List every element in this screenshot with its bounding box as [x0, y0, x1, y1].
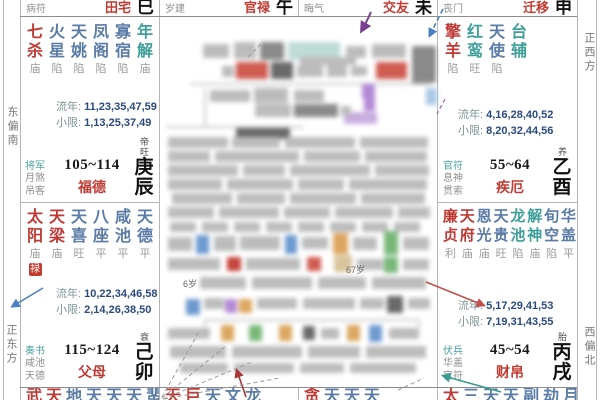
redacted-block — [290, 193, 356, 204]
redacted-block — [300, 363, 344, 373]
star-column: 天府庙 — [459, 208, 476, 261]
star-brightness: 庙 — [30, 63, 41, 76]
star-char: 红 — [467, 23, 483, 42]
star-char: 解 — [137, 42, 153, 61]
clipped-star-char: 武 — [26, 388, 42, 400]
palace-wu-strip: 岁建 官禄午 — [159, 0, 298, 16]
star-char: 龙 — [510, 208, 525, 227]
star-column: 咸池平 — [112, 208, 134, 276]
star-char: 鸾 — [467, 42, 483, 61]
redacted-block — [362, 222, 388, 232]
star-column: 华盖平 — [560, 208, 577, 261]
redacted-block — [246, 258, 300, 270]
palace-mao-fumu: 太阳庙禄天梁庙天喜旺八座平咸池平天德平流年: 10,22,34,46,58小限:… — [20, 202, 159, 387]
star-brightness: 陷 — [492, 63, 503, 76]
redacted-block — [255, 104, 291, 117]
star-column: 火星陷 — [46, 23, 68, 76]
redacted-block — [285, 235, 297, 254]
star-column: 天梁庙 — [46, 208, 68, 276]
star-column: 八座平 — [90, 208, 112, 276]
heavenly-stem: 己 — [134, 343, 153, 363]
star-brightness: 庙 — [529, 248, 540, 261]
redacted-block — [219, 207, 279, 218]
liunian-line: 流年: 10,22,34,46,58 — [56, 286, 158, 302]
redacted-block — [297, 65, 323, 77]
earthly-branch: 酉 — [552, 178, 571, 198]
star-brightness: 庙 — [462, 248, 473, 261]
star-char: 阳 — [27, 227, 43, 246]
star-char: 贵 — [494, 227, 509, 246]
xiaoxian-line: 小限: 8,20,32,44,56 — [458, 123, 553, 139]
star-char: 八 — [93, 208, 109, 227]
direction-label-west-north: 西偏北 — [583, 326, 595, 368]
redacted-block — [203, 44, 229, 58]
liunian-years: 10,22,34,46,58 — [84, 288, 157, 300]
shensha-list: 奏书咸池天德 — [25, 346, 52, 384]
palace-bottom: 官符息神贯索55~64疾厄养乙酉 — [443, 147, 574, 198]
redacted-block — [236, 128, 290, 139]
star-char: 年 — [137, 23, 153, 42]
star-column: 天喜旺 — [68, 208, 90, 276]
redacted-block — [186, 299, 200, 315]
redacted-block — [366, 346, 426, 358]
age-range: 45~54 — [470, 342, 550, 359]
redacted-block — [200, 277, 246, 289]
redacted-block — [234, 222, 260, 232]
xiaoxian-line: 小限: 7,19,31,43,55 — [458, 314, 553, 330]
shensha-item: 奏书 — [25, 346, 52, 359]
xiaoxian-years: 8,20,32,44,56 — [486, 125, 553, 137]
shensha-list: 官符息神贯索 — [443, 161, 470, 199]
star-brightness: 陷 — [96, 63, 107, 76]
xiaoxian-label: 小限: — [56, 304, 84, 316]
xiaoxian-line: 小限: 2,14,26,38,50 — [56, 302, 158, 318]
shensha-item: 天德 — [25, 371, 52, 384]
redacted-block — [403, 259, 429, 270]
star-char: 池 — [510, 227, 525, 246]
star-brightness: 陷 — [118, 63, 129, 76]
branch-label: 巳 — [137, 1, 154, 15]
star-char: 天 — [137, 208, 153, 227]
branch-label: 申 — [555, 1, 572, 15]
redacted-block — [168, 137, 228, 148]
redacted-block — [249, 325, 262, 341]
redacted-block — [362, 84, 375, 99]
palace-mid: 45~54财帛 — [470, 342, 550, 383]
star-brightness: 陷 — [546, 248, 557, 261]
branch-label: 未 — [415, 1, 432, 15]
redacted-block — [307, 257, 321, 271]
redacted-block — [418, 319, 420, 328]
redacted-block — [168, 165, 238, 176]
palace-name: 福德 — [52, 177, 132, 197]
star-char: 贞 — [443, 227, 458, 246]
star-char: 寡 — [115, 23, 131, 42]
shensha-label: 晦气 — [304, 4, 324, 15]
star-brightness: 庙 — [52, 248, 63, 261]
liunian-line: 流年: 5,17,29,41,53 — [458, 298, 553, 314]
redacted-block — [300, 57, 356, 65]
redacted-block — [227, 257, 241, 271]
star-char: 姚 — [71, 42, 87, 61]
redacted-block — [294, 90, 324, 102]
stem-branch-column: 衰己卯 — [132, 332, 156, 383]
palace-hai-strip: 太三天天副劫月 — [438, 388, 577, 400]
star-char: 羊 — [445, 42, 461, 61]
star-brightness: 旺 — [496, 248, 507, 261]
palace-name: 迁移 — [523, 1, 549, 15]
clipped-star-char: 太 — [443, 388, 459, 400]
star-brightness: 庙 — [479, 248, 490, 261]
redacted-block — [266, 222, 292, 232]
earthly-branch: 辰 — [134, 178, 153, 198]
star-char: 旬 — [544, 208, 559, 227]
center-age-fragment-mid: 67岁 — [346, 263, 365, 276]
outer-right-border — [596, 0, 597, 400]
clipped-star-char: 天 — [344, 388, 360, 400]
redacted-block — [204, 319, 206, 328]
center-age-fragment-small: 6岁 — [183, 277, 197, 290]
clipped-star-char: 天 — [106, 388, 122, 400]
shensha-item: 贯索 — [443, 186, 470, 199]
redacted-block — [321, 328, 339, 339]
heavenly-stem: 乙 — [552, 158, 571, 178]
star-char: 天 — [71, 23, 87, 42]
shensha-label: 岁建 — [165, 4, 185, 15]
liunian-years: 4,16,28,40,52 — [486, 109, 553, 121]
life-stage-label: 衰 — [139, 332, 149, 342]
shensha-item: 官符 — [443, 161, 470, 174]
heavenly-stem: 庚 — [134, 158, 153, 178]
shensha-item: 将军 — [25, 161, 52, 174]
redacted-block — [349, 179, 427, 190]
star-char: 天 — [71, 208, 87, 227]
palace-chen-fude: 七杀庙火星陷天姚陷凤阁陷寡宿陷年解庙流年: 11,23,35,47,59小限: … — [20, 17, 159, 202]
redacted-block — [303, 326, 315, 340]
redacted-block — [215, 151, 299, 162]
clipped-star-char: 月 — [563, 388, 577, 400]
redacted-block — [298, 179, 344, 190]
grid-col-border-1 — [159, 0, 160, 400]
palace-name: 疾厄 — [470, 177, 550, 197]
sihua-badge-lu: 禄 — [29, 263, 42, 276]
redacted-block — [364, 99, 375, 111]
shensha-item: 伏兵 — [443, 346, 470, 359]
redacted-block — [271, 62, 293, 79]
redacted-block — [361, 193, 425, 204]
liunian-label: 流年: — [458, 109, 486, 121]
palace-zi-strip: 贪天天天 — [299, 388, 437, 400]
star-char: 廉 — [443, 208, 458, 227]
palace-name: 交友 — [383, 1, 409, 15]
redacted-block — [222, 66, 234, 77]
star-char: 天 — [49, 208, 65, 227]
redacted-block — [234, 363, 294, 373]
redacted-block — [168, 151, 210, 162]
star-brightness: 平 — [96, 248, 107, 261]
direction-label-east-south: 东偏南 — [6, 106, 18, 148]
redacted-block — [389, 328, 419, 339]
palace-you-jie: 擎羊陷红鸾旺天使陷台辅流年: 4,16,28,40,52小限: 8,20,32,… — [438, 17, 577, 202]
redacted-block — [365, 151, 427, 162]
shensha-item: 吊客 — [25, 186, 52, 199]
direction-label-east: 正东方 — [5, 324, 17, 366]
grid-right-border — [577, 0, 578, 400]
redacted-block — [168, 237, 192, 251]
redacted-block — [387, 296, 403, 313]
redacted-block — [284, 207, 330, 218]
xiaoxian-label: 小限: — [56, 117, 84, 129]
shensha-item: 华盖 — [443, 358, 470, 371]
redacted-block — [333, 233, 348, 254]
redacted-block — [344, 112, 377, 124]
star-column: 恩光庙 — [476, 208, 493, 261]
palace-wei-strip: 晦气 交友未 — [298, 0, 437, 16]
shensha-label: 丧门 — [443, 4, 463, 15]
liunian-line: 流年: 4,16,28,40,52 — [458, 107, 553, 123]
clipped-star-char: 龙 — [245, 388, 261, 400]
clipped-star-char: 天 — [503, 388, 519, 400]
clipped-star-char: 副 — [523, 388, 539, 400]
star-column: 年解庙 — [134, 23, 156, 76]
redacted-block — [298, 222, 324, 232]
star-column: 龙池陷 — [510, 208, 527, 261]
stars-row: 太阳庙禄天梁庙天喜旺八座平咸池平天德平 — [20, 202, 159, 276]
age-range: 115~124 — [52, 342, 132, 359]
star-column: 天贵旺 — [493, 208, 510, 261]
star-char: 凤 — [93, 23, 109, 42]
redacted-block — [375, 165, 429, 176]
star-column: 天使陷 — [486, 23, 508, 76]
palace-shen-strip: 丧门 迁移申 — [437, 0, 577, 16]
shensha-label: 病符 — [26, 4, 46, 15]
star-char: 空 — [544, 227, 559, 246]
stars-row: 廉贞利天府庙恩光庙天贵旺龙池陷解神庙旬空陷华盖平 — [438, 202, 577, 261]
star-char: 天 — [494, 208, 509, 227]
gray-dashed-rays-icon — [162, 42, 424, 399]
redacted-block — [285, 137, 355, 148]
star-char: 德 — [137, 227, 153, 246]
redacted-block — [221, 325, 234, 341]
redacted-block — [412, 46, 436, 83]
star-brightness: 陷 — [74, 63, 85, 76]
redacted-block — [237, 193, 285, 204]
stem-branch-column: 胎丙戌 — [550, 332, 574, 383]
star-char: 府 — [460, 227, 475, 246]
clipped-star-char: 天 — [324, 388, 340, 400]
redacted-block — [166, 126, 304, 128]
star-char: 星 — [49, 42, 65, 61]
redacted-block — [294, 104, 338, 117]
star-column: 天德平 — [134, 208, 156, 276]
star-char: 盖 — [561, 227, 576, 246]
redacted-block — [288, 42, 340, 60]
redacted-block — [196, 235, 209, 254]
palace-name: 父母 — [52, 362, 132, 382]
life-stage-label: 养 — [557, 147, 567, 157]
star-brightness: 利 — [445, 248, 456, 261]
star-column: 台辅 — [508, 23, 530, 76]
redacted-block — [376, 62, 407, 79]
redacted-block — [335, 207, 393, 218]
clipped-star-char: 蜚 — [146, 388, 159, 400]
shensha-item: 月煞 — [25, 173, 52, 186]
redacted-block — [168, 207, 214, 218]
star-column: 解神庙 — [526, 208, 543, 261]
star-char: 使 — [489, 42, 505, 61]
star-char: 杀 — [27, 42, 43, 61]
liunian-label: 流年: — [56, 101, 84, 113]
clipped-star-char: 巨 — [185, 388, 201, 400]
redacted-block — [330, 222, 356, 232]
redacted-block — [394, 222, 420, 232]
star-char: 火 — [49, 23, 65, 42]
redacted-block — [252, 277, 312, 289]
star-column: 凤阁陷 — [90, 23, 112, 76]
xiaoxian-years: 2,14,26,38,50 — [84, 304, 151, 316]
outer-left-border — [3, 0, 4, 400]
redacted-block — [204, 298, 224, 309]
age-range: 105~114 — [52, 157, 132, 174]
redacted-block — [384, 257, 398, 273]
redacted-block — [403, 237, 429, 250]
star-char: 光 — [477, 227, 492, 246]
redacted-block — [303, 298, 355, 309]
star-char: 擎 — [445, 23, 461, 42]
liunian-block: 流年: 5,17,29,41,53小限: 7,19,31,43,55 — [458, 298, 553, 330]
shensha-item: 官符 — [443, 371, 470, 384]
clipped-star-char: 三 — [463, 388, 479, 400]
redacted-block — [232, 346, 302, 358]
redacted-block — [170, 222, 196, 232]
stem-branch-column: 帝旺庚辰 — [132, 137, 156, 198]
star-brightness: 陷 — [52, 63, 63, 76]
star-brightness: 陷 — [448, 63, 459, 76]
redacted-block — [225, 299, 237, 313]
stars-row: 七杀庙火星陷天姚陷凤阁陷寡宿陷年解庙 — [20, 17, 159, 76]
palace-xu-caibo: 廉贞利天府庙恩光庙天贵旺龙池陷解神庙旬空陷华盖平流年: 5,17,29,41,5… — [438, 202, 577, 387]
redacted-block — [360, 298, 384, 309]
star-char: 梁 — [49, 227, 65, 246]
palace-name: 官禄 — [244, 1, 270, 15]
liunian-line: 流年: 11,23,35,47,59 — [56, 99, 157, 115]
redacted-block — [327, 65, 347, 77]
star-column: 红鸾旺 — [464, 23, 486, 76]
palace-name: 财帛 — [470, 362, 550, 382]
redacted-block — [279, 325, 292, 341]
star-char: 阁 — [93, 42, 109, 61]
star-brightness: 平 — [140, 248, 151, 261]
liunian-label: 流年: — [458, 300, 486, 312]
clipped-star-char: 地 — [66, 388, 82, 400]
heavenly-stem: 丙 — [552, 343, 571, 363]
redacted-block — [341, 106, 351, 116]
star-column: 旬空陷 — [543, 208, 560, 261]
redacted-block — [346, 46, 366, 58]
star-char: 七 — [27, 23, 43, 42]
age-range: 55~64 — [470, 157, 550, 174]
palace-mid: 105~114福德 — [52, 157, 132, 198]
star-char: 恩 — [477, 208, 492, 227]
palace-chou-strip: 天巨天文龙 — [160, 388, 298, 400]
shensha-item: 息神 — [443, 173, 470, 186]
redacted-block — [204, 319, 420, 321]
star-brightness: 陷 — [512, 248, 523, 261]
liunian-years: 5,17,29,41,53 — [486, 300, 553, 312]
star-column: 廉贞利 — [442, 208, 459, 261]
redacted-block — [236, 62, 268, 79]
redacted-block — [239, 299, 252, 313]
redacted-block — [170, 346, 226, 358]
star-brightness: 庙 — [140, 63, 151, 76]
star-brightness: 平 — [118, 248, 129, 261]
star-char: 天 — [489, 23, 505, 42]
redacted-block — [318, 277, 366, 289]
redacted-block — [351, 66, 367, 76]
redacted-block — [257, 298, 297, 309]
star-char: 台 — [511, 23, 527, 42]
ziwei-chart-page: 东偏南 正东方 正西方 西偏北 病符 田宅巳 岁建 官禄午 晦气 交友未 丧门 … — [0, 0, 600, 400]
redacted-block — [240, 236, 280, 250]
clipped-star-char: 天 — [165, 388, 181, 400]
redacted-block — [408, 298, 430, 309]
stars-row: 擎羊陷红鸾旺天使陷台辅 — [438, 17, 577, 76]
xiaoxian-label: 小限: — [458, 125, 486, 137]
redacted-block — [308, 346, 360, 358]
star-char: 座 — [93, 227, 109, 246]
earthly-branch: 戌 — [552, 363, 571, 383]
clipped-star-char: 天 — [86, 388, 102, 400]
redacted-block — [398, 207, 430, 218]
redacted-block — [204, 88, 206, 128]
star-char: 咸 — [115, 208, 131, 227]
redacted-block — [210, 90, 250, 102]
redacted-block — [304, 151, 360, 162]
liunian-years: 11,23,35,47,59 — [84, 101, 157, 113]
star-char: 天 — [460, 208, 475, 227]
liunian-block: 流年: 10,22,34,46,58小限: 2,14,26,38,50 — [56, 286, 158, 318]
redacted-block — [202, 222, 228, 232]
redacted-block — [360, 137, 428, 148]
redacted-block — [214, 236, 236, 251]
redacted-block — [254, 88, 288, 103]
redacted-block — [372, 44, 406, 58]
redacted-block — [426, 88, 437, 105]
star-char: 池 — [115, 227, 131, 246]
redacted-block — [168, 328, 210, 339]
star-char: 喜 — [71, 227, 87, 246]
xiaoxian-label: 小限: — [458, 316, 486, 328]
shensha-list: 将军月煞吊客 — [25, 161, 52, 199]
redacted-block — [243, 165, 285, 176]
redacted-block — [190, 83, 430, 85]
star-char: 解 — [527, 208, 542, 227]
stem-branch-column: 养乙酉 — [550, 147, 574, 198]
clipped-star-char: 天 — [46, 388, 62, 400]
palace-bottom: 奏书咸池天德115~124父母衰己卯 — [25, 332, 156, 383]
clipped-star-char: 劫 — [543, 388, 559, 400]
star-char: 宿 — [115, 42, 131, 61]
life-stage-label: 帝旺 — [139, 137, 149, 157]
shensha-item: 咸池 — [25, 358, 52, 371]
clipped-star-char: 天 — [364, 388, 380, 400]
clipped-star-char: 文 — [225, 388, 241, 400]
star-char: 神 — [527, 227, 542, 246]
clipped-star-char: 天 — [205, 388, 221, 400]
redacted-block — [168, 258, 220, 270]
star-char: 华 — [561, 208, 576, 227]
liunian-label: 流年: — [56, 288, 84, 300]
